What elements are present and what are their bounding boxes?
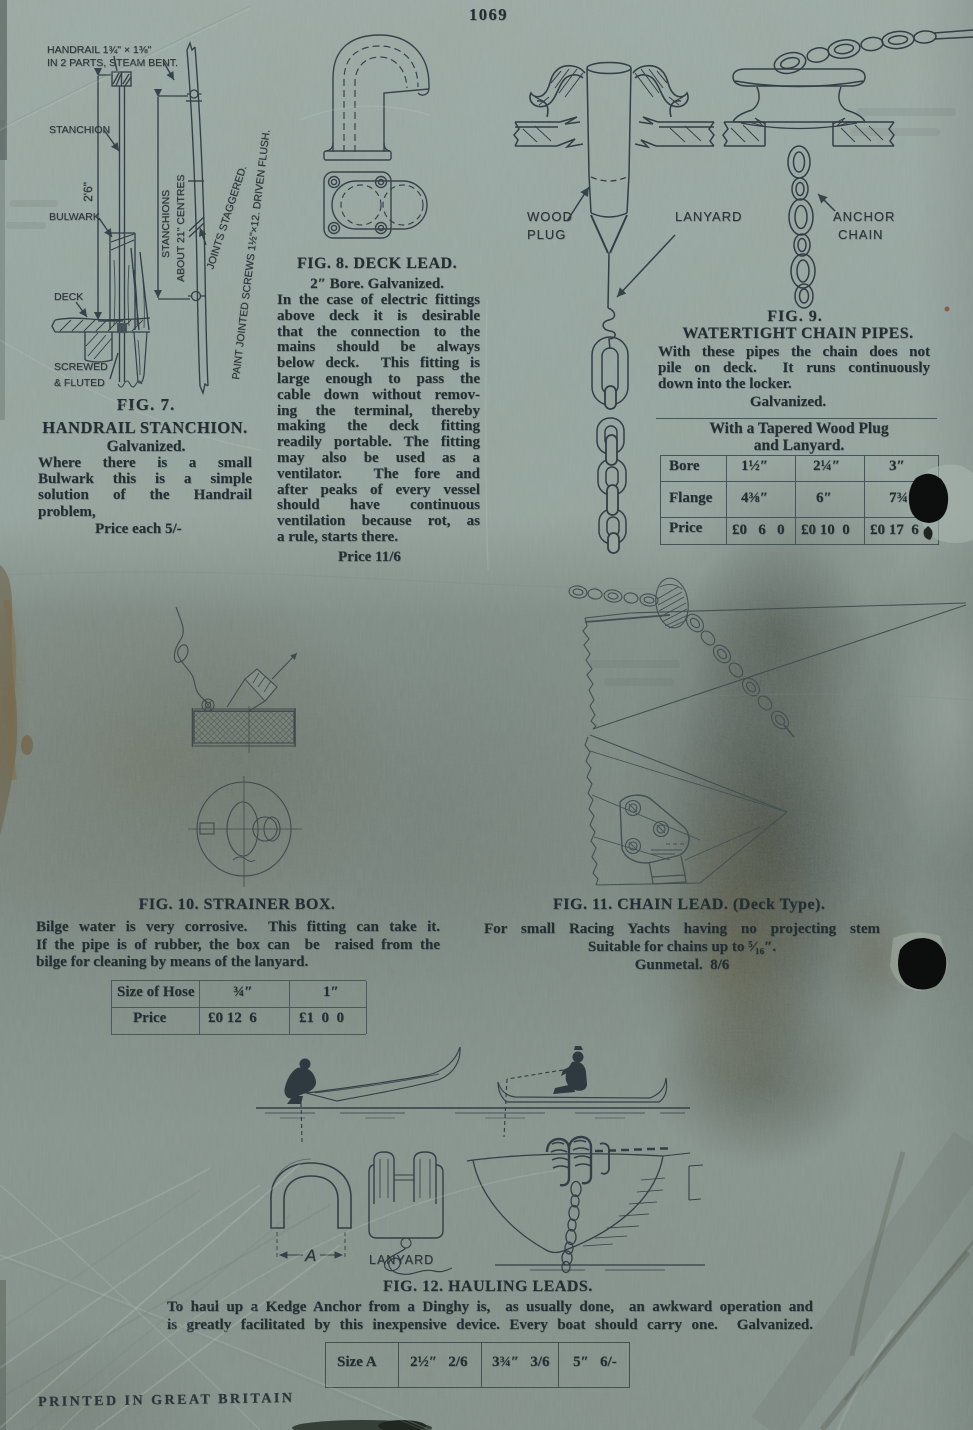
- svg-text:CHAIN: CHAIN: [838, 227, 883, 242]
- svg-text:BULWARK: BULWARK: [49, 211, 100, 223]
- svg-text:LANYARD: LANYARD: [369, 1253, 434, 1267]
- svg-text:SCREWED: SCREWED: [54, 361, 108, 373]
- svg-text:& FLUTED: & FLUTED: [54, 377, 105, 389]
- svg-text:DECK: DECK: [54, 291, 83, 303]
- svg-text:HANDRAIL 1¾" × 1⅜": HANDRAIL 1¾" × 1⅜": [47, 44, 152, 56]
- svg-text:IN 2 PARTS, STEAM BENT.: IN 2 PARTS, STEAM BENT.: [47, 57, 178, 69]
- svg-text:A: A: [304, 1246, 316, 1265]
- svg-text:2'6": 2'6": [81, 182, 95, 202]
- svg-text:LANYARD: LANYARD: [675, 209, 742, 224]
- svg-text:STANCHION: STANCHION: [49, 124, 110, 136]
- svg-text:STANCHIONS: STANCHIONS: [160, 190, 172, 258]
- svg-text:WOOD: WOOD: [527, 209, 573, 224]
- svg-text:ABOUT 21" CENTRES: ABOUT 21" CENTRES: [175, 175, 187, 282]
- svg-text:ANCHOR: ANCHOR: [833, 209, 895, 224]
- svg-text:PLUG: PLUG: [527, 227, 566, 242]
- svg-text:JOINTS STAGGERED.: JOINTS STAGGERED.: [204, 164, 249, 271]
